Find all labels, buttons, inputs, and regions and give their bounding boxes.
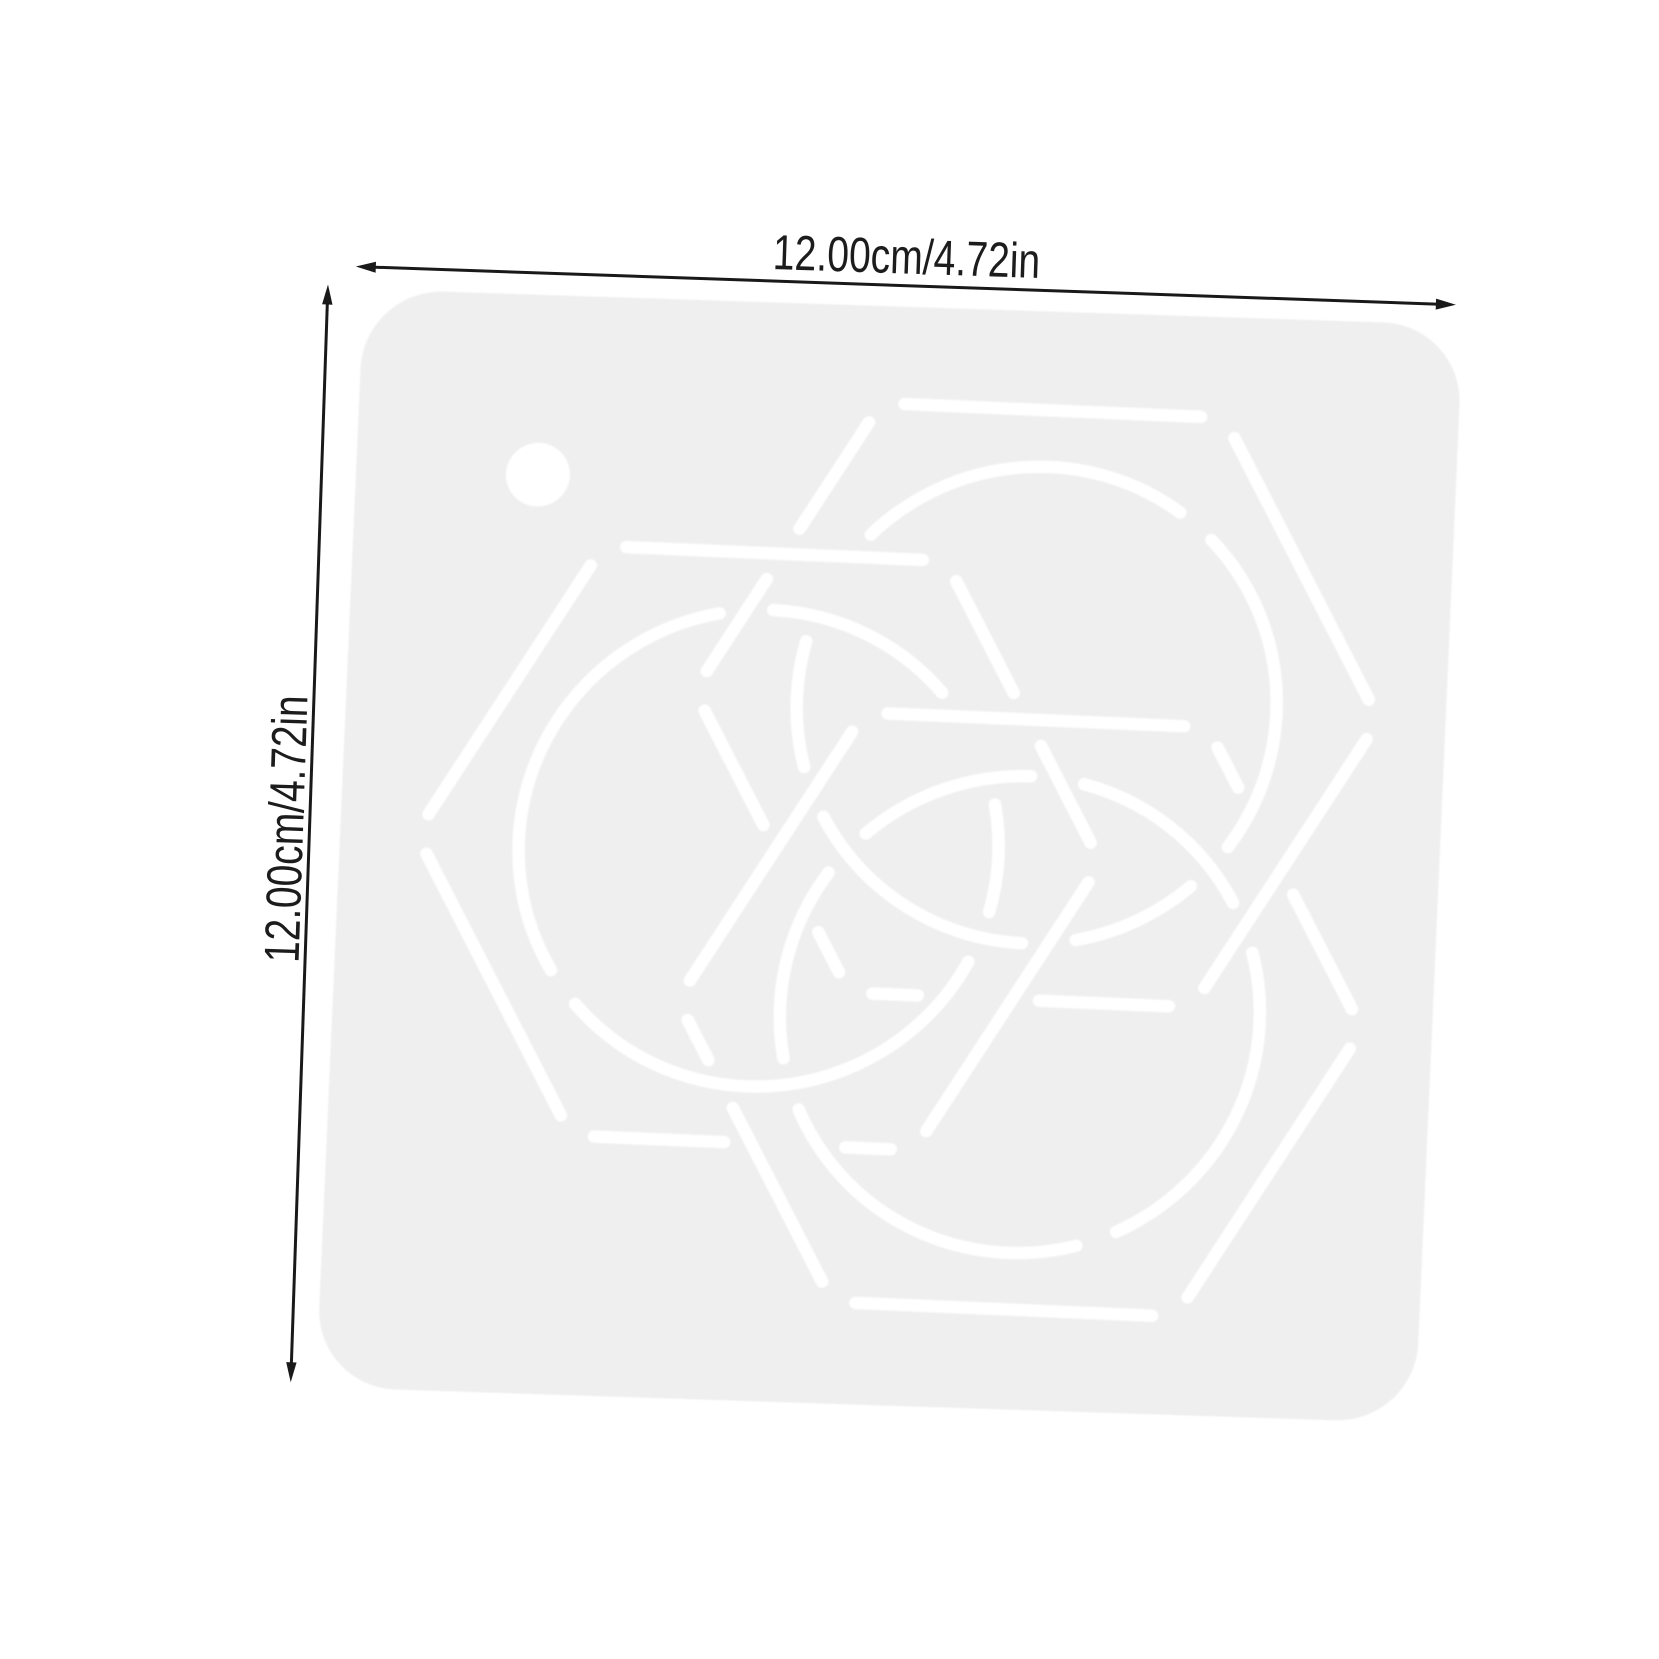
svg-text:12.00cm/4.72in: 12.00cm/4.72in [772, 226, 1041, 289]
svg-text:12.00cm/4.72in: 12.00cm/4.72in [255, 694, 318, 963]
